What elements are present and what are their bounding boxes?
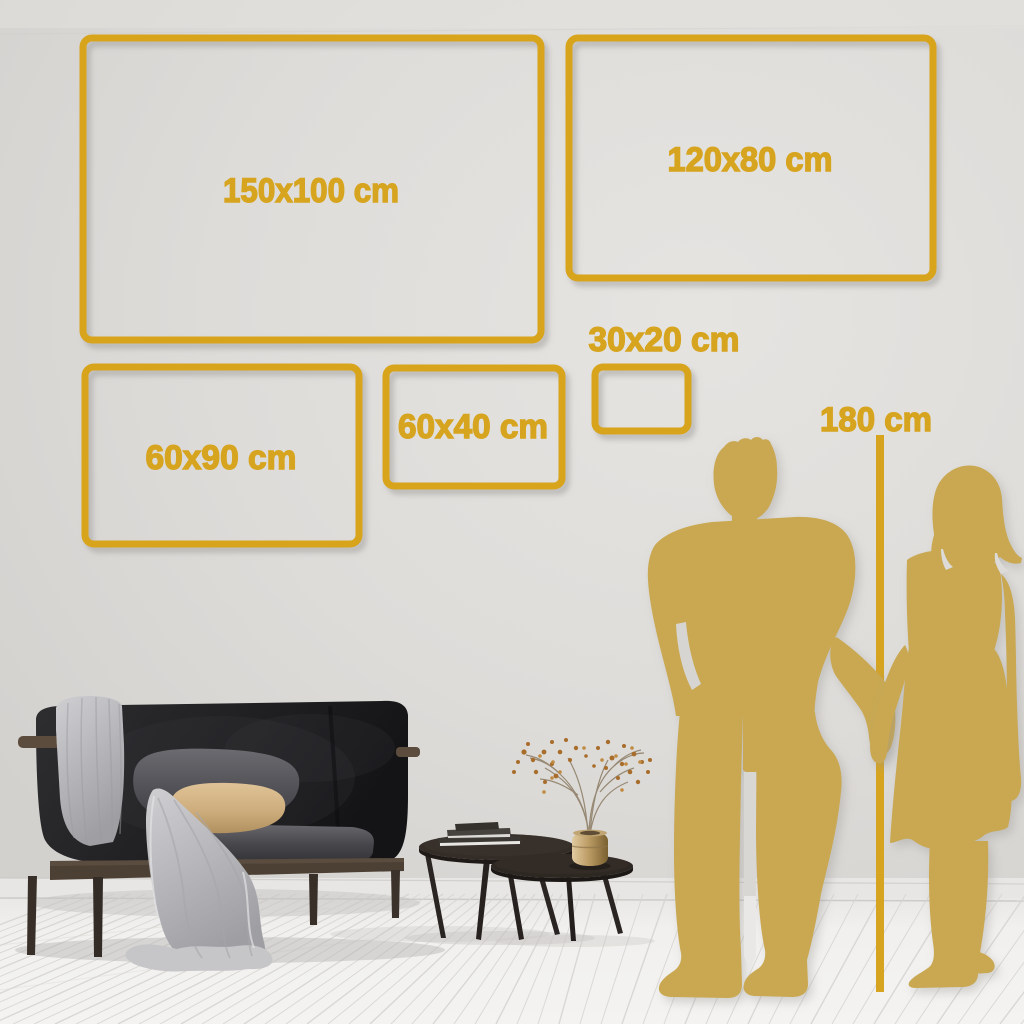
svg-text:150x100 cm: 150x100 cm xyxy=(223,172,399,210)
svg-text:120x80 cm: 120x80 cm xyxy=(668,141,833,179)
svg-text:60x90 cm: 60x90 cm xyxy=(146,439,297,477)
svg-text:30x20 cm: 30x20 cm xyxy=(589,321,740,359)
svg-text:60x40 cm: 60x40 cm xyxy=(398,408,548,446)
svg-text:180 cm: 180 cm xyxy=(820,401,932,439)
